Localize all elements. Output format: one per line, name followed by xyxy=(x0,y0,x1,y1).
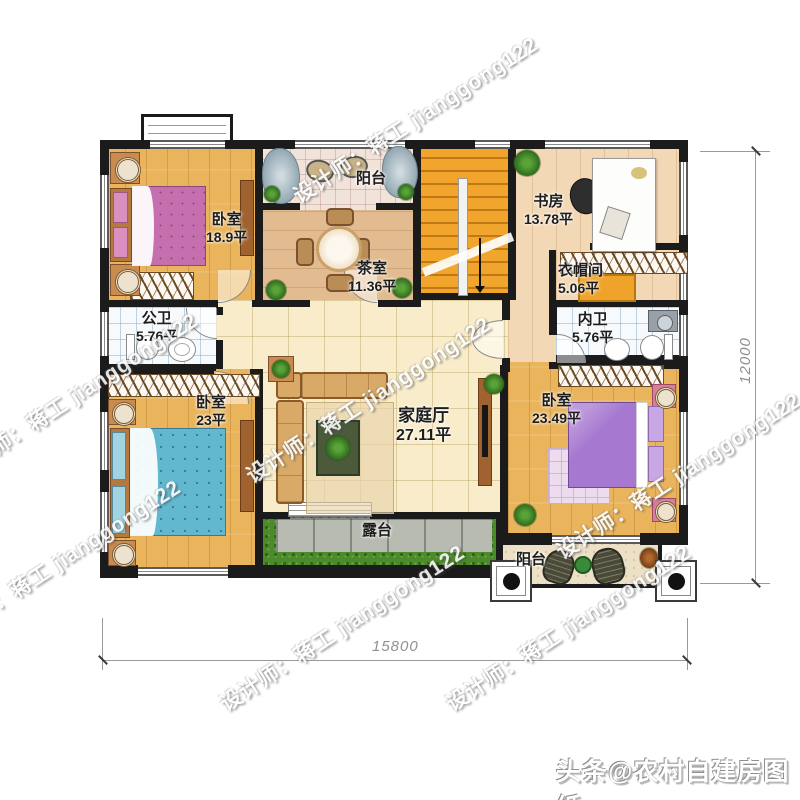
lamp-icon xyxy=(115,269,141,295)
desk xyxy=(592,158,656,252)
wall-segment xyxy=(549,307,557,335)
room-area: 18.9平 xyxy=(206,229,247,246)
wall-segment xyxy=(100,300,218,307)
label-study: 书房 13.78平 xyxy=(524,193,573,228)
toilet-tank xyxy=(664,334,673,360)
wall-segment xyxy=(100,565,138,578)
room-name: 阳台 xyxy=(356,170,386,187)
room-name: 衣帽间 xyxy=(558,262,603,279)
room-name: 卧室 xyxy=(542,392,572,409)
label-bedroom2: 卧室 23平 xyxy=(196,394,226,429)
dim-ext-line xyxy=(700,583,770,584)
room-name: 卧室 xyxy=(212,211,242,228)
label-bedroom1: 卧室 18.9平 xyxy=(206,211,247,246)
stair-arrow-head xyxy=(475,286,485,298)
tea-chair xyxy=(296,238,314,266)
plant-icon xyxy=(272,360,290,378)
wall-segment xyxy=(549,250,556,307)
room-area: 11.36平 xyxy=(348,278,396,295)
tv-cabinet xyxy=(478,378,492,486)
label-balcony-top: 阳台 xyxy=(356,170,386,188)
tea-chair xyxy=(326,208,354,226)
dim-line-horizontal xyxy=(102,660,688,661)
wall-segment xyxy=(216,340,223,369)
bedroom2-window-south xyxy=(138,567,228,576)
plant-icon xyxy=(398,184,414,200)
pillow xyxy=(648,406,664,442)
stair-direction-arrow xyxy=(479,238,481,288)
lamp-icon xyxy=(112,543,136,567)
floor-plan: 卧室 18.9平 阳台 茶室 11.36平 书房 13.78平 衣帽间 5.06… xyxy=(0,0,800,800)
lamp-icon xyxy=(112,402,136,426)
wall-segment xyxy=(263,512,290,519)
stair-window xyxy=(475,140,510,149)
wall-segment xyxy=(100,140,109,175)
wall-segment xyxy=(263,300,310,307)
credit-text: 头条@农村自建房图纸 xyxy=(556,752,800,800)
dim-line-vertical xyxy=(755,151,756,583)
plant-icon xyxy=(514,150,540,176)
pillow xyxy=(112,432,126,480)
room-name: 露台 xyxy=(362,522,392,539)
private-bath-window xyxy=(679,315,688,356)
lamp-icon xyxy=(655,387,677,409)
room-name: 卧室 xyxy=(196,394,226,411)
wall-segment xyxy=(376,203,418,210)
shower-unit xyxy=(648,310,678,332)
wall-segment xyxy=(216,307,223,315)
wall-segment xyxy=(100,470,109,492)
plant-icon xyxy=(514,504,536,526)
pillow xyxy=(113,227,128,258)
lamp-icon xyxy=(115,157,141,183)
bedroom2-wardrobe xyxy=(108,374,260,397)
stair-handrail xyxy=(458,178,468,296)
bedroom3-wardrobe xyxy=(558,365,664,387)
label-balcony-bottom: 阳台 xyxy=(516,551,546,569)
wall-segment xyxy=(260,203,300,210)
public-bath-window xyxy=(100,312,109,356)
plant-icon xyxy=(484,374,504,394)
plant-icon xyxy=(266,280,286,300)
wall-segment xyxy=(378,300,418,307)
study-window-east xyxy=(679,162,688,235)
pillow xyxy=(113,192,128,223)
wall-segment xyxy=(679,140,688,162)
bay-window-top xyxy=(150,140,225,149)
study-window xyxy=(545,140,650,149)
label-cloakroom: 衣帽间 5.06平 xyxy=(558,262,603,297)
room-area: 23.49平 xyxy=(532,410,581,427)
room-area: 27.11平 xyxy=(396,426,451,445)
wall-segment xyxy=(228,565,505,578)
room-area: 5.76平 xyxy=(572,329,613,346)
label-bedroom3: 卧室 23.49平 xyxy=(532,392,581,427)
room-area: 23平 xyxy=(196,412,226,429)
dim-ext-line xyxy=(700,151,770,152)
room-name: 书房 xyxy=(534,193,564,210)
bed-sheet-fold xyxy=(132,186,154,266)
wall-segment xyxy=(502,300,510,320)
dim-height-label: 12000 xyxy=(737,337,754,384)
room-name: 茶室 xyxy=(357,260,387,277)
bed-sheet-fold xyxy=(636,402,648,488)
label-tea-room: 茶室 11.36平 xyxy=(348,260,396,295)
plant-icon xyxy=(264,186,280,202)
room-area: 13.78平 xyxy=(524,211,573,228)
wall-segment xyxy=(502,533,552,545)
room-name: 阳台 xyxy=(516,551,546,568)
dim-width-label: 15800 xyxy=(372,638,419,655)
room-area: 5.06平 xyxy=(558,280,603,297)
room-name: 家庭厅 xyxy=(398,406,449,425)
label-private-bath: 内卫 5.76平 xyxy=(572,311,613,346)
toilet-icon xyxy=(640,335,664,360)
label-terrace: 露台 xyxy=(362,522,392,540)
bedroom1-window xyxy=(100,175,109,248)
room-name: 内卫 xyxy=(578,311,608,328)
label-family-hall: 家庭厅 27.11平 xyxy=(396,406,451,446)
